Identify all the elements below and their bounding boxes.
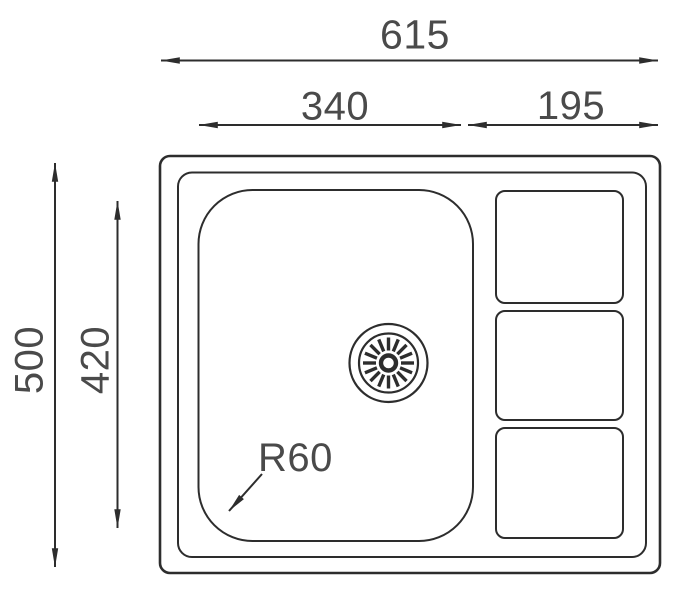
radius-callout: R60 [229, 436, 333, 511]
drain-spoke [370, 372, 379, 381]
dim-drainer-width: 195 [468, 84, 658, 128]
dim-bowl-width: 340 [199, 85, 461, 129]
dim-label-bowl-width: 340 [301, 85, 369, 129]
drain-spoke [365, 353, 377, 358]
drain-spoke [397, 345, 406, 354]
drain-spoke [393, 339, 398, 351]
dim-bowl-depth: 420 [74, 201, 118, 528]
drain-spoke [397, 372, 406, 381]
sink-bowl [199, 190, 474, 541]
drain-strainer-icon [350, 324, 428, 402]
sink-rim [178, 173, 646, 558]
dim-label-overall-width: 615 [380, 12, 450, 58]
drainer-panel-middle [496, 311, 623, 420]
dim-overall-width: 615 [161, 12, 658, 61]
drain-spoke [370, 345, 379, 354]
drain-spoke [393, 375, 398, 387]
sink-plan [160, 156, 660, 573]
drain-center-hole [381, 356, 396, 371]
drain-spoke [400, 353, 412, 358]
dim-label-drainer-width: 195 [537, 84, 605, 128]
drainer-panel-bottom [496, 428, 623, 538]
drain-spoke [379, 375, 384, 387]
dim-label-overall-depth: 500 [8, 326, 52, 394]
dim-label-bowl-depth: 420 [74, 326, 118, 394]
drain-spoke [379, 339, 384, 351]
radius-label: R60 [258, 436, 333, 480]
drawing-canvas: 615 340 195 500 420 [0, 0, 681, 611]
dim-overall-depth: 500 [8, 163, 56, 567]
drain-spoke [365, 368, 377, 373]
drain-spoke [400, 368, 412, 373]
sink-technical-drawing: 615 340 195 500 420 [0, 0, 681, 611]
drainer-panel-top [496, 191, 623, 303]
